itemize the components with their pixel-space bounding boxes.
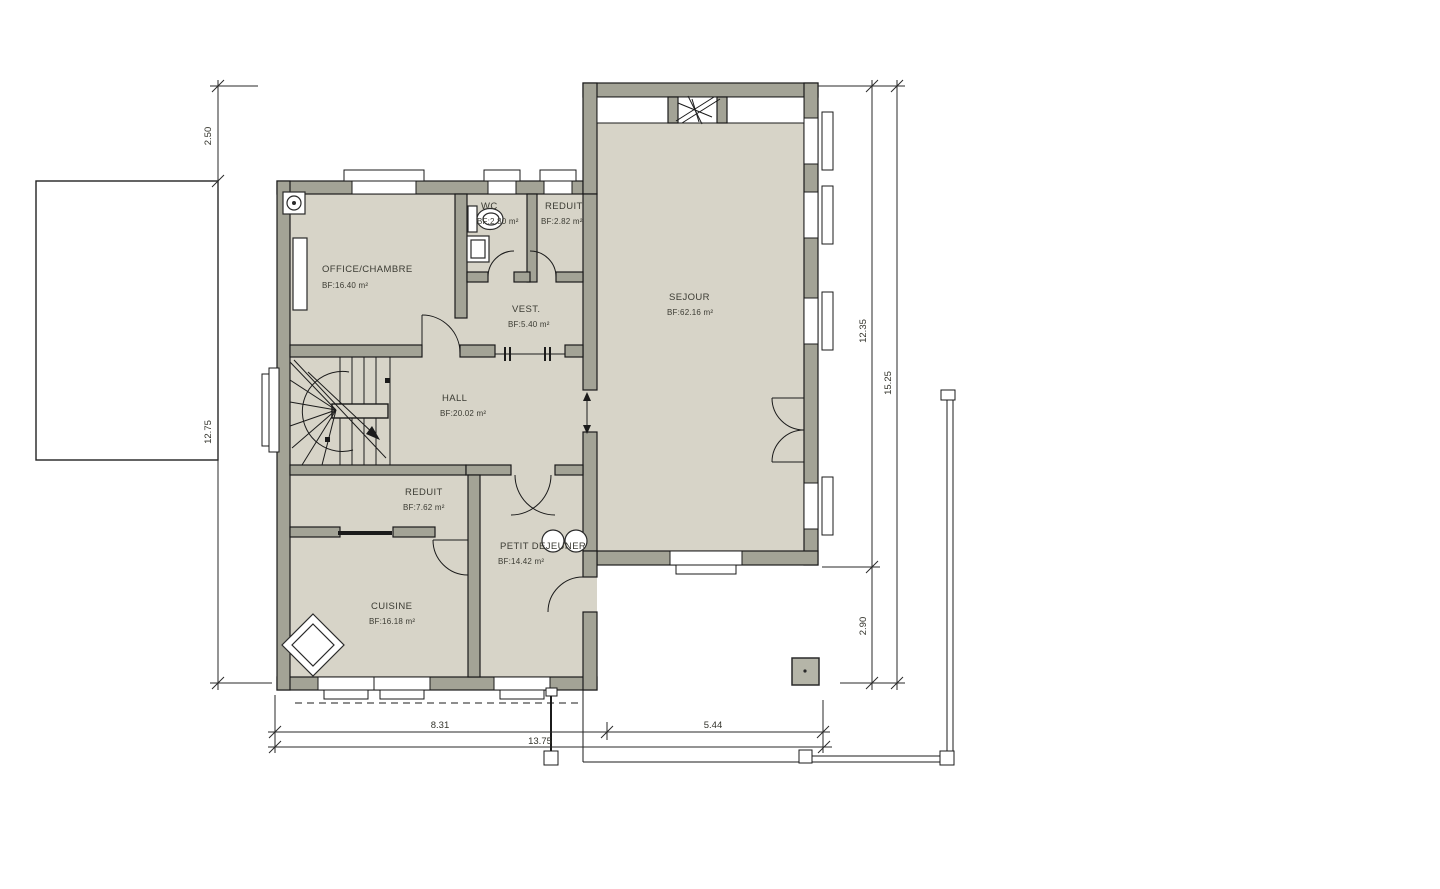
room-label-cuisine: CUISINE bbox=[371, 601, 412, 612]
room-area-wc: BF:2.80 m² bbox=[477, 217, 519, 226]
wc-sink-icon bbox=[467, 236, 489, 262]
room-area-vest: BF:5.40 m² bbox=[508, 320, 550, 329]
room-label-reduit-low: REDUIT bbox=[405, 487, 443, 498]
room-area-sejour: BF:62.16 m² bbox=[667, 308, 713, 317]
dim-left-top: 2.50 bbox=[203, 127, 214, 146]
floor-plan-canvas: OFFICE/CHAMBRE BF:16.40 m² WC BF:2.80 m²… bbox=[0, 0, 1440, 889]
room-area-hall: BF:20.02 m² bbox=[440, 409, 486, 418]
room-label-vest: VEST. bbox=[512, 304, 540, 315]
wall-top-left-block bbox=[277, 181, 583, 194]
window-sejour-right-1 bbox=[822, 112, 833, 170]
room-area-cuisine: BF:16.18 m² bbox=[369, 617, 415, 626]
window-sejour-right-3 bbox=[822, 292, 833, 350]
wall-sejour-top bbox=[583, 83, 818, 97]
window-office-top bbox=[344, 170, 424, 181]
dim-bottom-left: 8.31 bbox=[431, 720, 450, 731]
annex-outline bbox=[36, 181, 218, 460]
sejour-top-band bbox=[597, 97, 804, 123]
room-label-hall: HALL bbox=[442, 393, 467, 404]
railing-cap bbox=[941, 390, 955, 400]
room-area-petit-dejeuner: BF:14.42 m² bbox=[498, 557, 544, 566]
railing-corner-post bbox=[940, 751, 954, 765]
dim-left-main: 12.75 bbox=[203, 420, 214, 444]
room-label-office: OFFICE/CHAMBRE bbox=[322, 264, 413, 275]
canopy-post bbox=[544, 688, 558, 765]
room-area-reduit-top: BF:2.82 m² bbox=[541, 217, 583, 226]
dim-bottom-total: 13.75 bbox=[528, 736, 552, 747]
window-sejour-right-2 bbox=[822, 186, 833, 244]
room-label-petit-dejeuner: PETIT DEJEUNER bbox=[500, 541, 586, 552]
dim-bottom-right: 5.44 bbox=[704, 720, 723, 731]
floor-plan-drawing: OFFICE/CHAMBRE BF:16.40 m² WC BF:2.80 m²… bbox=[0, 0, 1440, 889]
window-cuisine-1 bbox=[318, 677, 374, 690]
room-area-reduit-low: BF:7.62 m² bbox=[403, 503, 445, 512]
railing-post bbox=[799, 750, 812, 763]
window-wc-top bbox=[484, 170, 520, 181]
dim-right-outer: 15.25 bbox=[883, 371, 894, 395]
room-label-wc: WC bbox=[481, 201, 498, 212]
window-sejour-bottom bbox=[670, 551, 742, 565]
window-petit-dejeuner bbox=[494, 677, 550, 690]
dim-right-inner-top: 12.35 bbox=[858, 319, 869, 343]
office-wardrobe bbox=[293, 238, 307, 310]
room-label-reduit-top: REDUIT bbox=[545, 201, 583, 212]
sliding-door-cuisine bbox=[338, 531, 392, 535]
window-reduit-top bbox=[540, 170, 576, 181]
window-sejour-right-4 bbox=[822, 477, 833, 535]
room-area-office: BF:16.40 m² bbox=[322, 281, 368, 290]
stair-landing bbox=[332, 404, 388, 418]
dim-right-inner-bottom: 2.90 bbox=[858, 617, 869, 636]
room-label-sejour: SEJOUR bbox=[669, 292, 710, 303]
window-cuisine-2 bbox=[374, 677, 430, 690]
window-stairs-left bbox=[269, 368, 279, 452]
